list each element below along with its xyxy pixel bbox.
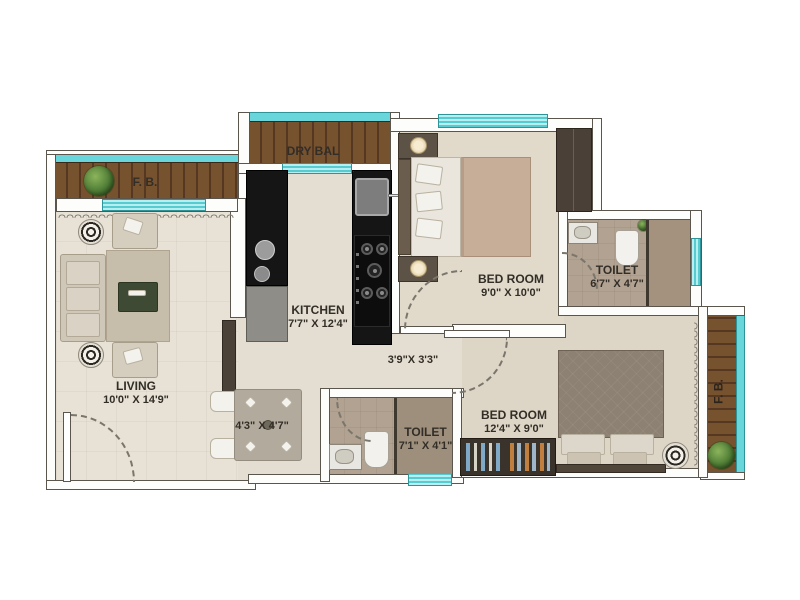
bed-bottom-headboard xyxy=(556,464,666,473)
living-window xyxy=(102,199,206,211)
toilet-top-label: TOILET 6'7" X 4'7" xyxy=(557,263,677,292)
toilet-top-wc xyxy=(615,230,639,266)
wall-top-fb-left xyxy=(46,150,246,155)
bed-top-duvet xyxy=(461,157,531,257)
wall-bedroom-top-right xyxy=(592,118,602,218)
kitchen-label: KITCHEN 7'7" X 12'4" xyxy=(268,303,368,332)
toilet-top-sink-basin xyxy=(574,226,591,239)
kitchen-sink-left-bowl-2 xyxy=(254,266,270,282)
wall-toilet-top-south xyxy=(558,306,745,316)
kitchen-sink-left-bowl-1 xyxy=(255,240,275,260)
side-table-top xyxy=(78,219,104,245)
kitchen-sink-right xyxy=(355,178,389,216)
coffee-table xyxy=(118,282,158,312)
living-label: LIVING 10'0" X 14'9" xyxy=(61,379,211,408)
bedroom-top-label: BED ROOM 9'0" X 10'0" xyxy=(451,272,571,301)
fb-right-label: F. B. xyxy=(712,363,727,421)
bed-top-pillow-2 xyxy=(415,191,443,213)
wardrobe-clothes-2 xyxy=(510,443,550,471)
fb-left-label: F. B. xyxy=(110,175,180,190)
bedroom-top-window xyxy=(438,114,548,128)
wall-toilet-bottom-north xyxy=(320,388,464,398)
kitchen-window xyxy=(282,163,352,174)
lamp-bottom xyxy=(410,260,427,277)
sofa-cushion-2 xyxy=(66,287,100,311)
tv-unit xyxy=(222,320,236,396)
wardrobe-top-bedroom xyxy=(556,128,592,212)
bed-top-headboard xyxy=(398,159,411,255)
bedroom-bottom-floor-upper xyxy=(564,314,702,342)
stove-burner-2 xyxy=(376,243,388,255)
bedroom-bottom-curtain xyxy=(694,322,700,466)
bed-top-pillow-3 xyxy=(415,217,443,239)
coffee-table-tray xyxy=(128,290,146,296)
side-table-bottom xyxy=(78,342,104,368)
sofa-cushion-1 xyxy=(66,261,100,285)
floor-plan: F. B. DRY BAL KITCHEN 7'7" X 12'4" BED R… xyxy=(0,0,800,600)
stove-burner-4 xyxy=(361,287,373,299)
dry-bal-label: DRY BAL xyxy=(263,144,363,159)
toilet-top-window xyxy=(691,238,701,286)
bedside-round-table xyxy=(662,442,689,469)
bedroom-bottom-door-leaf xyxy=(444,330,510,338)
wall-left-outer xyxy=(46,152,56,490)
wardrobe-top-divider xyxy=(573,129,574,211)
sofa-cushion-3 xyxy=(66,313,100,337)
lamp-top xyxy=(410,137,427,154)
toilet-bottom-sink-basin xyxy=(335,449,354,464)
entrance-door-leaf xyxy=(63,412,71,482)
passage-label: 3'9"X 3'3" xyxy=(363,354,463,368)
fb-right-plant xyxy=(708,442,735,469)
bed-top-pillow-1 xyxy=(415,163,443,185)
dining-label: 4'3" X 4'7" xyxy=(212,420,312,434)
stove-burner-3 xyxy=(367,263,382,278)
stove-burner-1 xyxy=(361,243,373,255)
fb-right-glass xyxy=(736,312,745,476)
bedroom-bottom-label: BED ROOM 12'4" X 9'0" xyxy=(454,408,574,437)
stove-burner-5 xyxy=(376,287,388,299)
stove-knobs xyxy=(356,248,359,304)
